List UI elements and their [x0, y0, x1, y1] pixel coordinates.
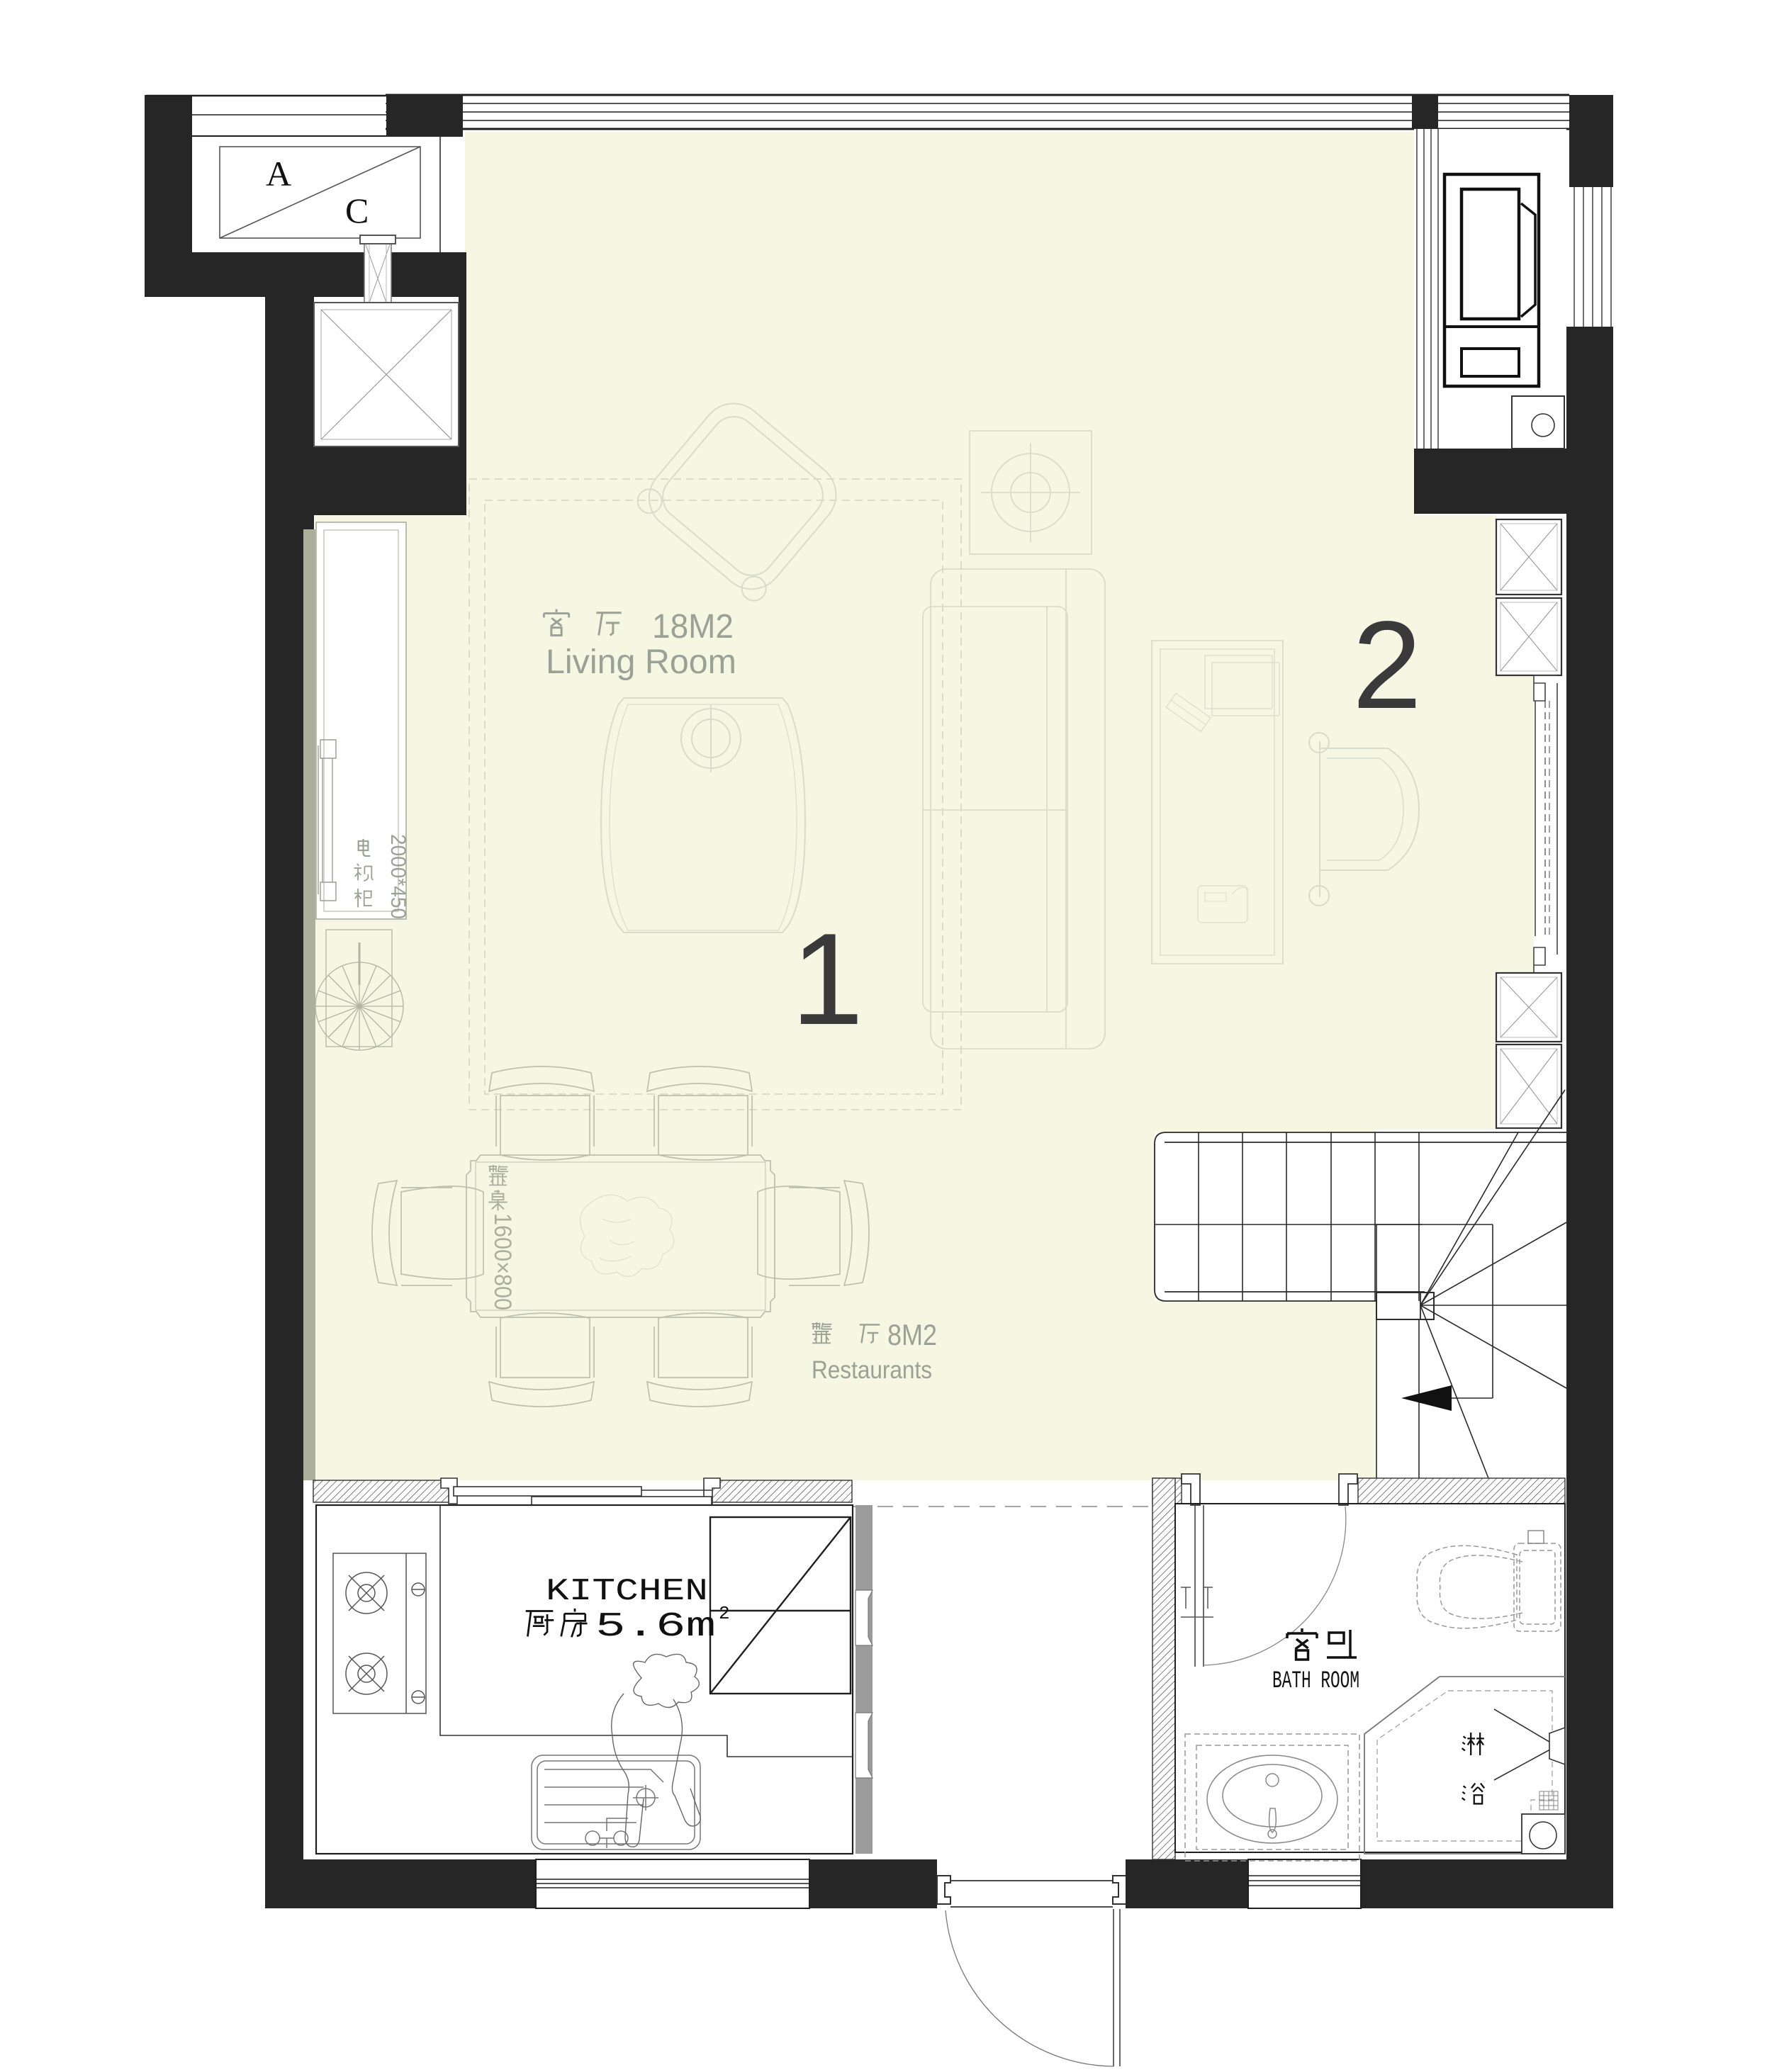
svg-text:1600×800: 1600×800 [489, 1213, 516, 1310]
svg-text:BATH ROOM: BATH ROOM [1272, 1668, 1359, 1695]
svg-text:2: 2 [719, 1603, 730, 1624]
svg-text:KITCHEN: KITCHEN [546, 1574, 708, 1609]
svg-text:Living Room: Living Room [546, 643, 736, 681]
svg-text:1: 1 [791, 906, 863, 1052]
svg-text:Restaurants: Restaurants [812, 1356, 932, 1384]
svg-text:2: 2 [1352, 596, 1422, 735]
svg-text:18M2: 18M2 [652, 608, 734, 646]
svg-text:C: C [345, 191, 369, 230]
svg-text:8M2: 8M2 [887, 1318, 937, 1351]
svg-text:A: A [266, 154, 291, 193]
svg-text:2000*450: 2000*450 [386, 834, 410, 919]
svg-text:5.6m: 5.6m [595, 1608, 716, 1646]
